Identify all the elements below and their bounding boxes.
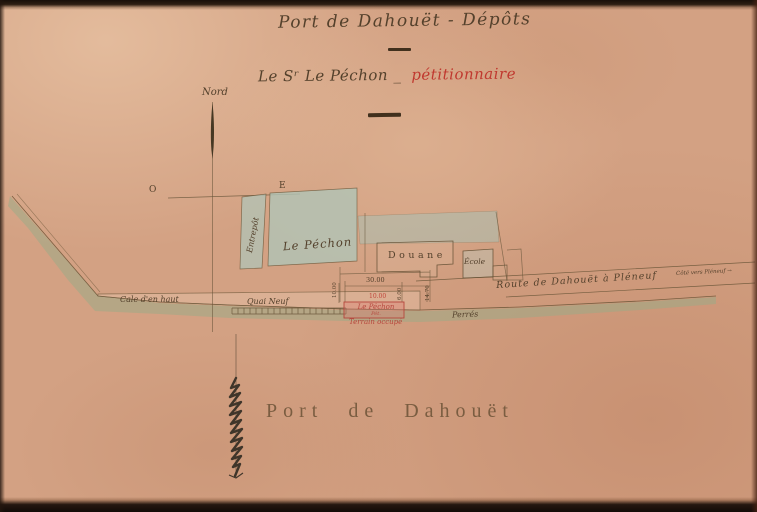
- ecole-label: École: [464, 258, 485, 266]
- cale-label: Cale d'en haut: [120, 296, 179, 304]
- quai-neuf-label: Quai Neuf: [247, 298, 288, 306]
- north-arrow-blade: [211, 103, 214, 159]
- plan-subtitle: Le Sʳ Le Péchon _pétitionnaire: [258, 67, 516, 85]
- north-label: Nord: [202, 88, 228, 98]
- wash-band: [358, 211, 499, 244]
- petition-plot-label: Le Péchon: [350, 304, 402, 311]
- petition-plot-sublabel: Pét.: [350, 312, 402, 317]
- map-caption: Port de Dahouët: [266, 401, 514, 421]
- petitioner-name: Le Sʳ Le Péchon _: [258, 66, 401, 85]
- terrain-occupe-label: Terrain occupé: [349, 319, 402, 326]
- east-label: E: [279, 182, 286, 191]
- shoreline-inner: [17, 194, 100, 292]
- plan-title: Port de Dahouët - Dépôts: [278, 11, 532, 32]
- dimension-front-width: 30.00: [366, 277, 385, 284]
- douane-label: Douane: [388, 251, 446, 261]
- perres-label: Perrés: [452, 311, 479, 320]
- west-label: O: [149, 186, 156, 195]
- dimension-right-depth: 14.70: [426, 285, 432, 301]
- dimension-left-depth: 10.00: [333, 282, 339, 298]
- le-pechon-parcel: [268, 188, 357, 266]
- subtitle-divider: [368, 113, 401, 118]
- title-divider: [388, 48, 411, 51]
- dimension-plot-width: 10.00: [369, 294, 386, 300]
- dimension-mid-depth: 6.00: [398, 288, 404, 300]
- scanned-plan-port-de-dahouet: Port de Dahouët - Dépôts Le Sʳ Le Péchon…: [0, 0, 757, 512]
- petitioner-role: pétitionnaire: [411, 65, 516, 84]
